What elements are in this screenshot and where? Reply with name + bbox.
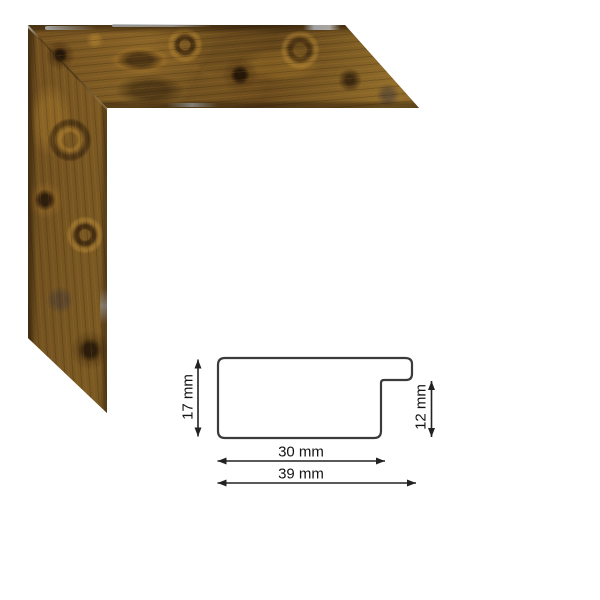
rebate-depth-label: 12 mm xyxy=(414,384,429,430)
face-width-label: 30 mm xyxy=(278,445,324,460)
profile-outline xyxy=(218,358,412,438)
moulding-product-image: 17 mm 12 mm 30 mm 39 mm xyxy=(0,0,600,600)
cross-section-diagram xyxy=(0,0,600,600)
overall-width-label: 39 mm xyxy=(278,467,324,482)
profile-height-label: 17 mm xyxy=(181,374,196,420)
